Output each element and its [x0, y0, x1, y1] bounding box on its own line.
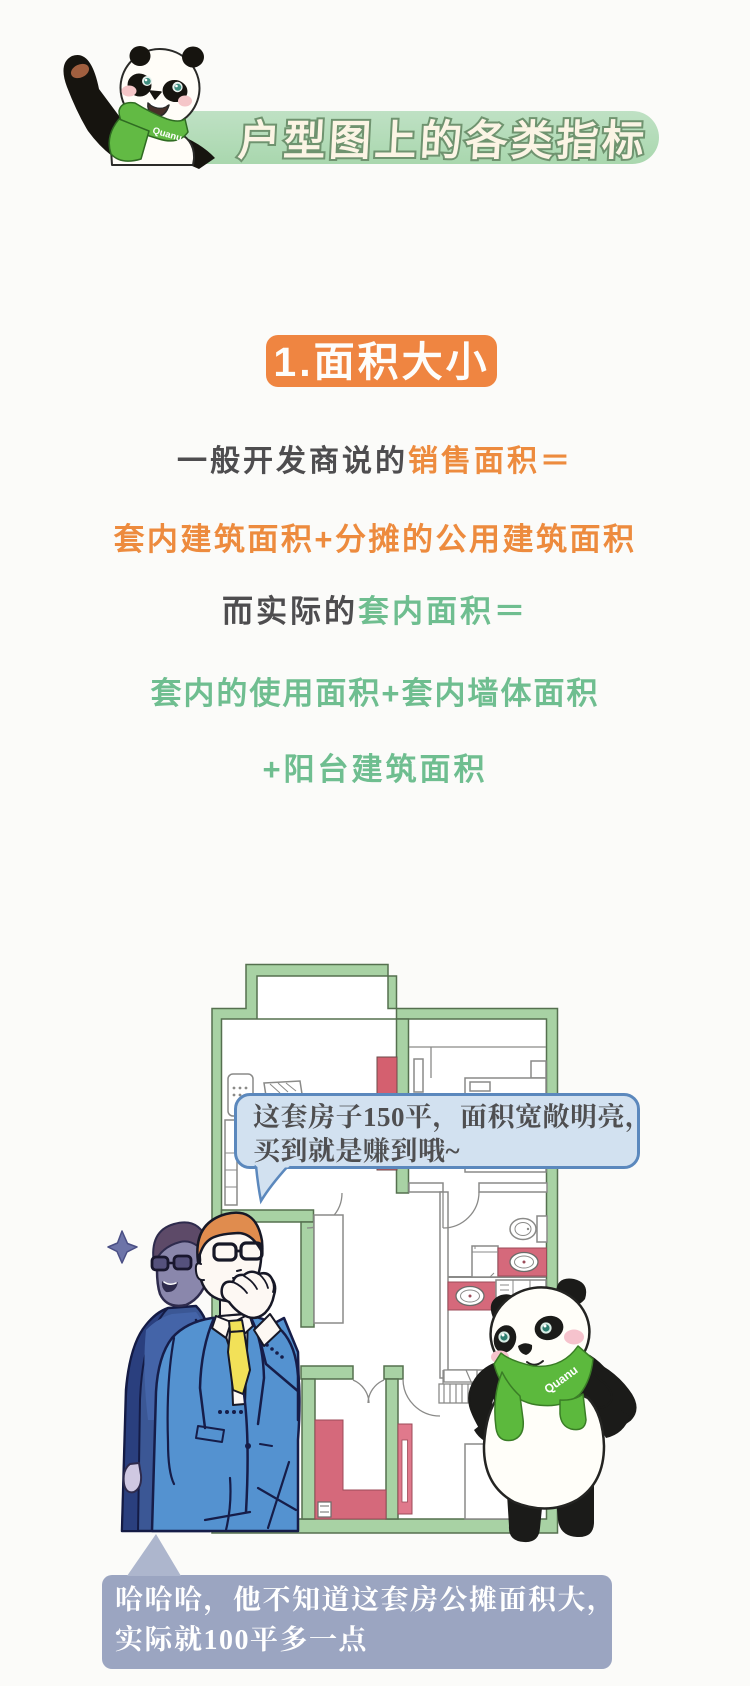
svg-text:户型图上的各类指标: 户型图上的各类指标: [237, 117, 649, 164]
